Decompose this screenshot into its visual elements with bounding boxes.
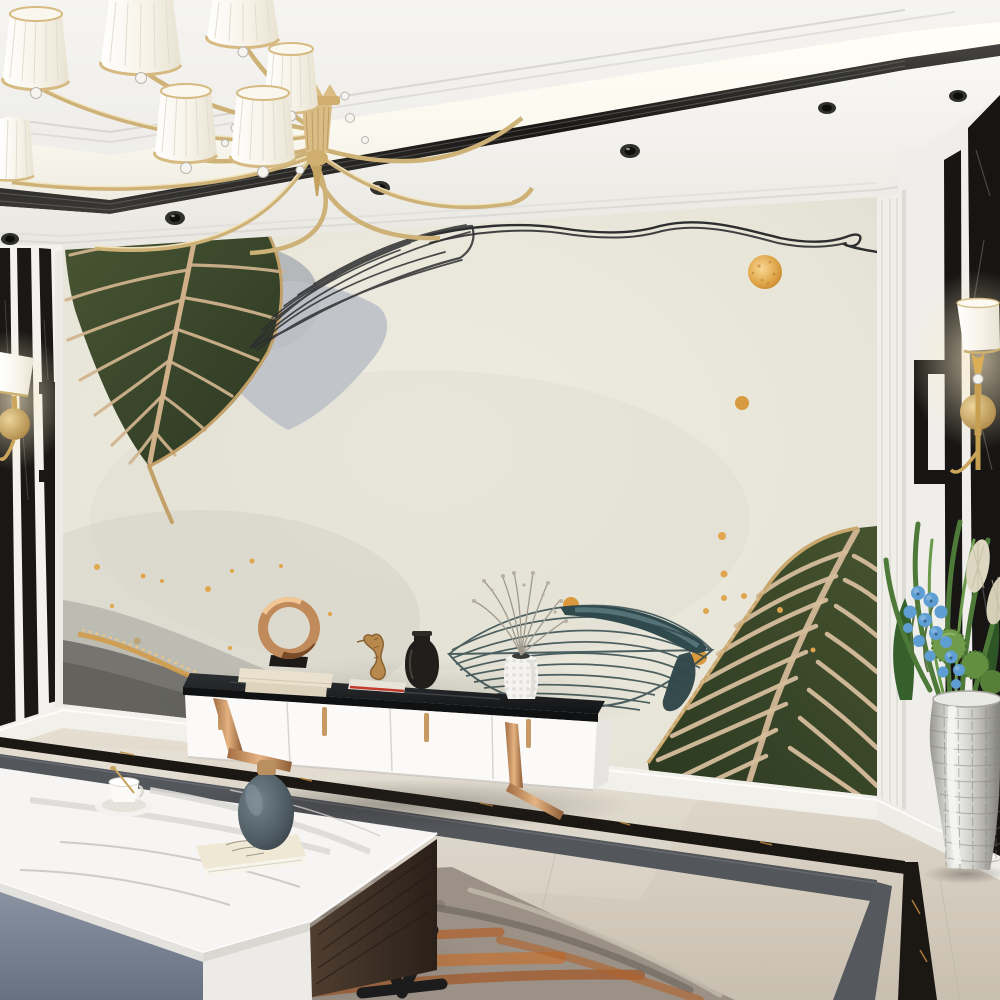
scene-canvas	[0, 0, 1000, 1000]
living-room-render	[0, 0, 1000, 1000]
